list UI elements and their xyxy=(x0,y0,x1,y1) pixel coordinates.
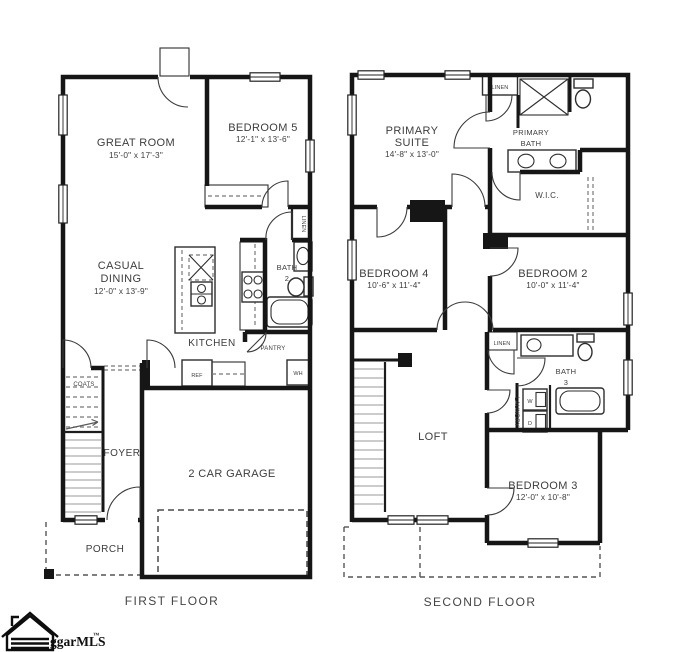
garage-door-outline xyxy=(158,510,307,577)
island-cooktop-icon xyxy=(191,282,212,306)
room-label-garage: 2 CAR GARAGE xyxy=(188,468,275,480)
bedroom2-door-arc xyxy=(490,248,518,276)
bathtub-icon xyxy=(267,297,312,327)
primary-suite-door-arc xyxy=(452,174,485,207)
room-dims-casual-dining: 12'-0" x 13'-9" xyxy=(94,286,148,296)
room-label-bedroom-5: BEDROOM 5 xyxy=(228,122,298,134)
first-floor-caption: FIRST FLOOR xyxy=(125,594,220,608)
floor-plan-image: GREAT ROOM 15'-0" x 17'-3" BEDROOM 5 12'… xyxy=(0,0,691,652)
window xyxy=(445,71,470,79)
second-floor-walls xyxy=(352,75,628,543)
label-dryer: D xyxy=(528,421,532,427)
label-ref: REF xyxy=(191,373,203,379)
toilet-icon xyxy=(577,334,594,361)
room-label-bedroom-2: BEDROOM 2 xyxy=(518,268,588,280)
shower-icon xyxy=(520,79,568,115)
room-label-bath-2-1: BATH xyxy=(277,263,298,272)
label-pantry: PANTRY xyxy=(261,346,286,352)
foyer-cased-opening xyxy=(104,366,140,370)
room-label-primary-suite-2: SUITE xyxy=(395,137,429,149)
sink-icon xyxy=(521,335,573,356)
bathtub-icon xyxy=(556,388,604,414)
entry-door-arc xyxy=(158,48,189,107)
room-dims-primary-suite: 14'-8" x 13'-0" xyxy=(385,149,439,159)
second-floor-plan: PRIMARY SUITE 14'-8" x 13'-0" LINEN PRIM… xyxy=(344,71,632,609)
kitchen-counter-right xyxy=(240,242,265,330)
window xyxy=(59,185,67,223)
room-dims-bedroom-4: 10'-6" x 11'-4" xyxy=(367,280,420,290)
stairs-first-floor xyxy=(65,420,102,513)
mls-logo: ggarMLS ™ xyxy=(2,613,106,650)
second-floor-caption: SECOND FLOOR xyxy=(424,595,537,609)
window xyxy=(358,71,384,79)
window xyxy=(59,95,67,135)
room-label-foyer: FOYER xyxy=(104,448,141,459)
bath2-door-arc xyxy=(266,212,292,240)
label-linen-upper: LINEN xyxy=(492,85,509,91)
room-label-bath-2-2: 2 xyxy=(285,274,289,283)
window xyxy=(348,240,356,280)
room-label-primary-suite-1: PRIMARY xyxy=(386,125,439,137)
window xyxy=(624,360,632,395)
linen-hall-door-arc xyxy=(488,350,514,374)
dining-door-arc xyxy=(63,340,91,368)
room-label-porch: PORCH xyxy=(86,544,125,555)
kitchen-island-icon xyxy=(175,247,215,333)
window xyxy=(528,539,558,547)
room-label-bedroom-3: BEDROOM 3 xyxy=(508,480,578,492)
room-label-casual-dining-2: DINING xyxy=(101,273,142,285)
footprint-dashed-outline xyxy=(344,527,600,577)
label-washer: W xyxy=(527,399,533,405)
label-wh: WH xyxy=(293,371,302,377)
room-label-loft: LOFT xyxy=(418,431,448,443)
bedroom4-door-arc xyxy=(377,207,407,237)
wic-closet-rods xyxy=(588,177,593,231)
kitchen-door-arc xyxy=(147,340,175,368)
window xyxy=(250,73,280,81)
room-label-casual-dining-1: CASUAL xyxy=(98,260,144,272)
bath3-door-arc xyxy=(517,358,545,386)
room-label-bath-3-2: 3 xyxy=(564,378,568,387)
window xyxy=(624,293,632,325)
window xyxy=(388,516,414,524)
bedroom5-closet xyxy=(205,185,268,207)
room-label-kitchen: KITCHEN xyxy=(188,338,235,349)
room-dims-bedroom-5: 12'-1" x 13'-6" xyxy=(236,134,290,144)
floor-plan-svg: GREAT ROOM 15'-0" x 17'-3" BEDROOM 5 12'… xyxy=(0,0,691,652)
room-label-primary-bath-1: PRIMARY xyxy=(513,128,549,137)
logo-trademark: ™ xyxy=(93,632,100,639)
stairs-second-floor xyxy=(354,362,386,512)
range-icon xyxy=(242,272,264,302)
front-door-arc xyxy=(107,487,140,520)
room-dims-great-room: 15'-0" x 17'-3" xyxy=(109,150,163,160)
label-laundry: LAUNDRY xyxy=(513,397,519,427)
window xyxy=(75,516,97,524)
room-dims-bedroom-3: 12'-0" x 10'-8" xyxy=(516,492,570,502)
room-label-great-room: GREAT ROOM xyxy=(97,137,175,149)
window xyxy=(348,95,356,135)
label-coats: COATS xyxy=(73,382,94,388)
label-linen-first-floor: LINEN xyxy=(300,216,306,233)
toilet-icon xyxy=(574,79,593,108)
window xyxy=(417,516,448,524)
room-dims-bedroom-2: 10'-0" x 11'-4" xyxy=(526,280,579,290)
label-linen-hall: LINEN xyxy=(494,341,511,347)
room-label-bath-3-1: BATH xyxy=(556,367,577,376)
window xyxy=(306,140,314,172)
room-label-wic: W.I.C. xyxy=(535,191,559,200)
bath2-fixtures xyxy=(267,242,313,327)
hall-door-arc xyxy=(487,390,510,413)
double-vanity-icon xyxy=(508,150,576,172)
room-label-bedroom-4: BEDROOM 4 xyxy=(359,268,429,280)
first-floor-plan: GREAT ROOM 15'-0" x 17'-3" BEDROOM 5 12'… xyxy=(44,48,314,608)
kitchen-counter-bottom xyxy=(212,362,245,386)
wic-door-arc xyxy=(492,172,520,200)
laundry-fixtures xyxy=(523,389,547,432)
bedroom3-door-arc xyxy=(487,488,514,515)
porch-post xyxy=(44,569,54,579)
primary-bath-door-arc xyxy=(454,112,490,148)
room-label-primary-bath-2: BATH xyxy=(521,139,542,148)
